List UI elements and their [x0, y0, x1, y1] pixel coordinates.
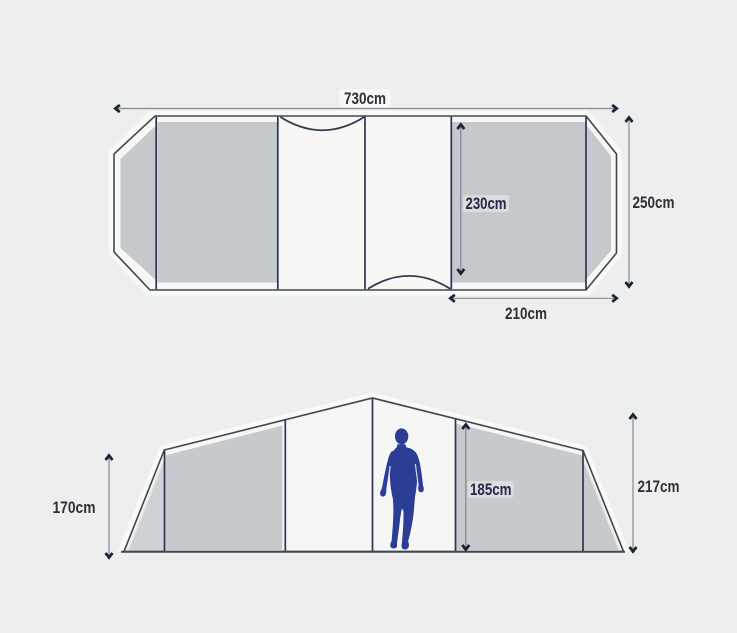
svg-text:170cm: 170cm [53, 499, 96, 517]
svg-text:210cm: 210cm [505, 305, 547, 323]
svg-text:230cm: 230cm [466, 195, 507, 213]
svg-text:217cm: 217cm [638, 478, 680, 496]
svg-text:250cm: 250cm [633, 194, 675, 212]
svg-text:730cm: 730cm [344, 90, 386, 108]
svg-text:185cm: 185cm [470, 481, 512, 499]
